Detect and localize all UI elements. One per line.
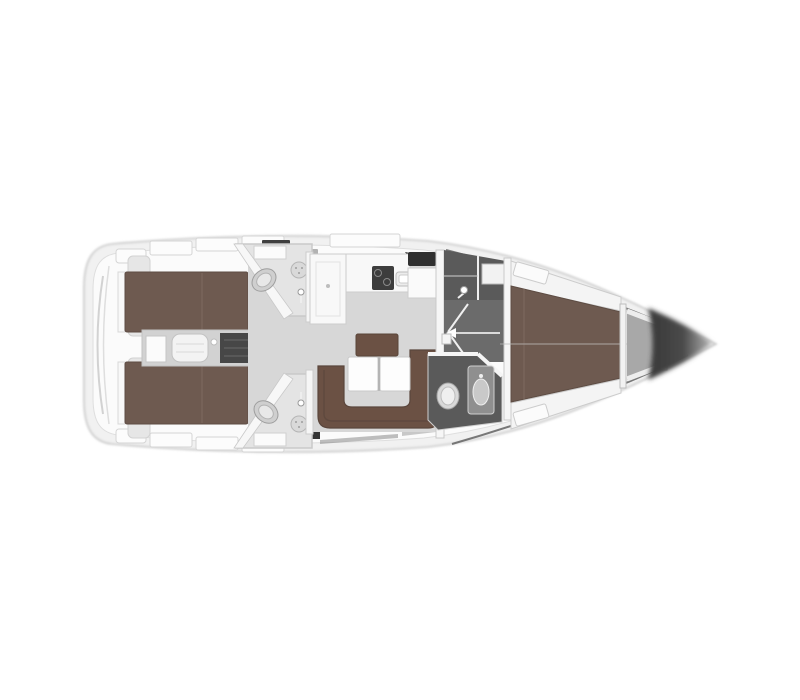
bow-tip bbox=[648, 308, 712, 380]
deck-locker bbox=[330, 234, 400, 247]
storage-box bbox=[146, 336, 166, 362]
aft-cabin-lower-headboard bbox=[118, 362, 125, 424]
aft-cabin-lower-berth bbox=[125, 362, 248, 424]
bulkhead-forward-cabin bbox=[504, 258, 511, 420]
bulkhead bbox=[306, 370, 313, 434]
vanity-locker bbox=[254, 433, 286, 446]
floor-plan-canvas bbox=[0, 0, 800, 700]
forward-head bbox=[428, 354, 502, 430]
salon-table-leaf bbox=[348, 357, 378, 391]
faucet-dot bbox=[479, 374, 483, 378]
salon-side-table bbox=[356, 334, 398, 356]
drain-dot bbox=[298, 272, 300, 274]
chart-table-nav-station bbox=[408, 252, 438, 298]
deck-locker bbox=[196, 238, 238, 251]
salon-table-leaf bbox=[380, 357, 410, 391]
shower-head-icon bbox=[461, 287, 468, 294]
drain-dot bbox=[295, 421, 297, 423]
step-box bbox=[442, 334, 451, 344]
chart-table bbox=[408, 268, 438, 298]
faucet-dot bbox=[326, 284, 330, 288]
deck-locker bbox=[196, 437, 238, 450]
toilet-bowl bbox=[441, 387, 455, 405]
stove-icon bbox=[372, 266, 394, 290]
drain-dot bbox=[301, 267, 303, 269]
shower-head-icon bbox=[298, 289, 304, 295]
aft-cabin-upper-headboard bbox=[118, 272, 125, 332]
deck-locker bbox=[150, 241, 192, 255]
vanity-locker bbox=[254, 246, 286, 259]
shower-head-icon bbox=[298, 400, 304, 406]
shower-locker bbox=[482, 264, 504, 284]
aft-cabin-upper-berth bbox=[125, 272, 248, 332]
engine-cover bbox=[172, 334, 208, 362]
drain-dot bbox=[298, 426, 300, 428]
nav-seat-dark bbox=[408, 252, 436, 266]
yacht-layout-diagram bbox=[0, 0, 800, 700]
fitting-dot bbox=[211, 339, 217, 345]
deck-locker bbox=[150, 433, 192, 447]
shower-drain-icon bbox=[291, 416, 307, 432]
bow-bulkhead bbox=[620, 304, 626, 388]
shower-drain-icon bbox=[291, 262, 307, 278]
drain-dot bbox=[295, 267, 297, 269]
sink-basin bbox=[473, 379, 489, 405]
galley-counter-leg bbox=[310, 254, 346, 324]
drain-dot bbox=[301, 421, 303, 423]
